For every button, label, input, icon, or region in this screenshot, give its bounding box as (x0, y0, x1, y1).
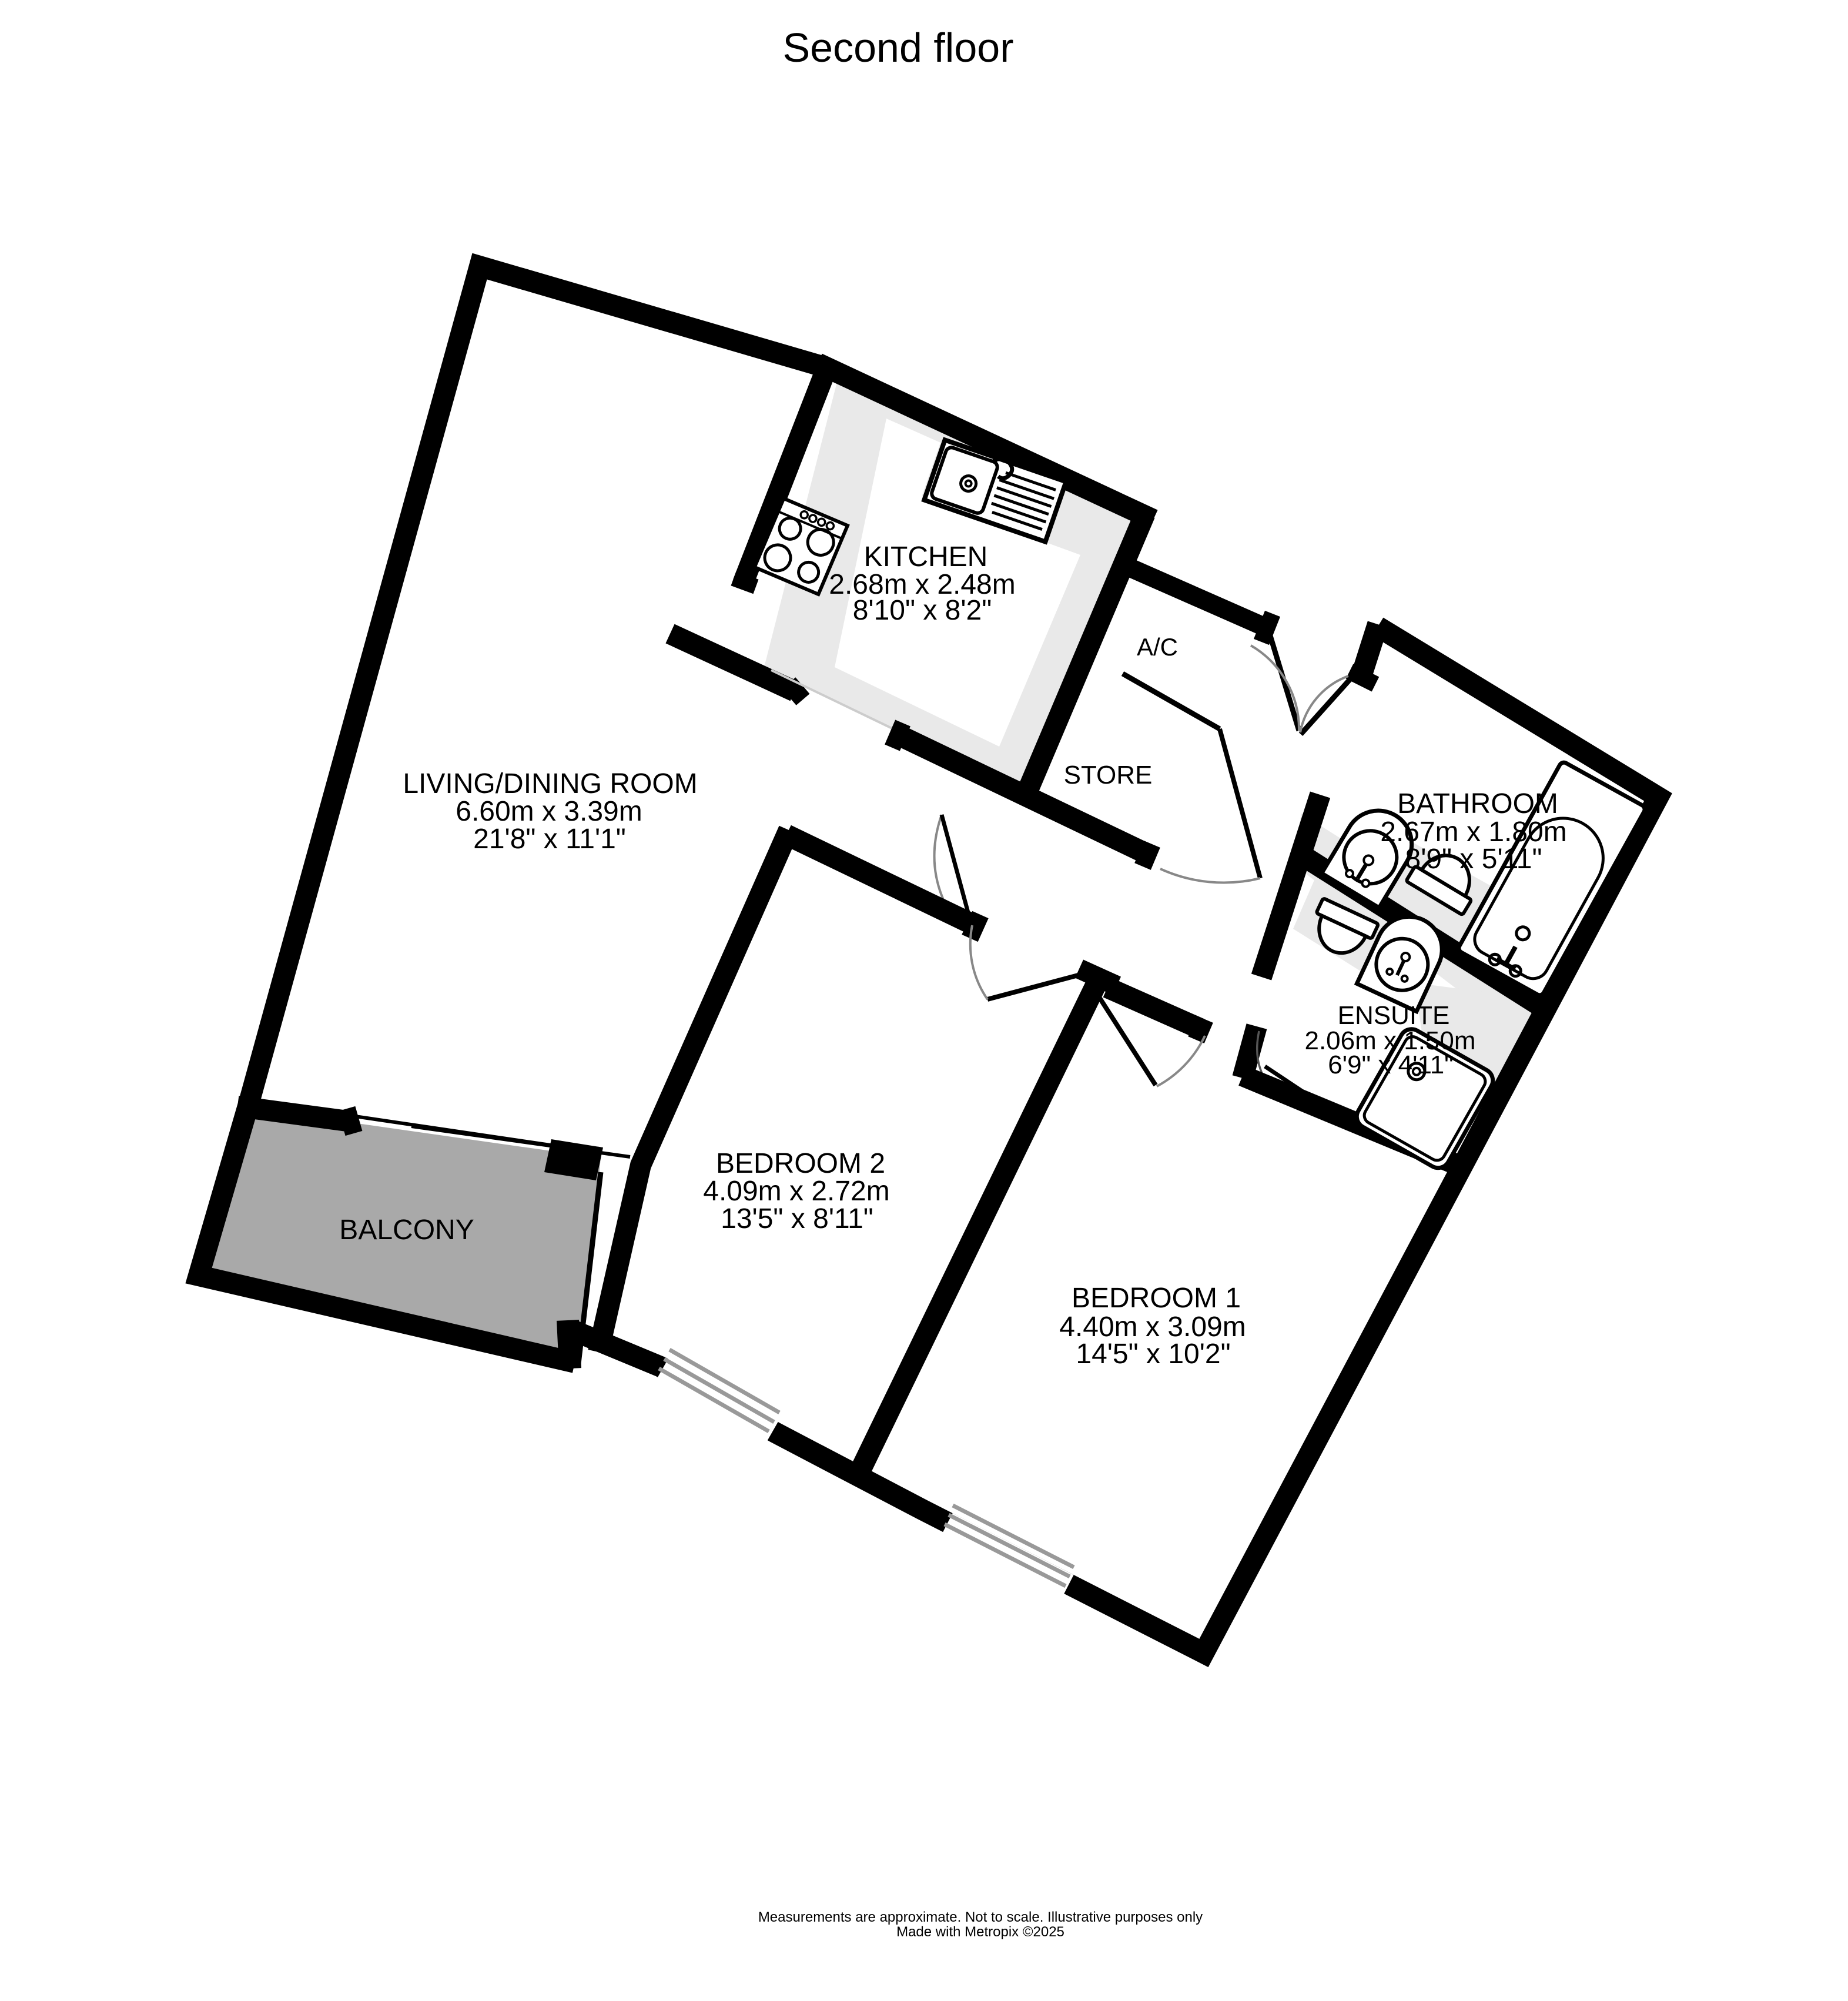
svg-text:6.60m x 3.39m: 6.60m x 3.39m (456, 796, 642, 827)
svg-text:Measurements are approximate.: Measurements are approximate. Not to sca… (758, 1909, 1203, 1925)
svg-text:KITCHEN: KITCHEN (864, 541, 988, 573)
svg-text:13'5" x 8'11": 13'5" x 8'11" (721, 1203, 873, 1234)
svg-text:Made with Metropix ©2025: Made with Metropix ©2025 (896, 1924, 1064, 1940)
svg-text:Second floor: Second floor (782, 25, 1013, 71)
svg-text:STORE: STORE (1064, 761, 1153, 789)
svg-text:ENSUITE: ENSUITE (1338, 1001, 1450, 1030)
svg-text:LIVING/DINING ROOM: LIVING/DINING ROOM (403, 768, 697, 799)
svg-text:BATHROOM: BATHROOM (1397, 788, 1558, 819)
svg-text:BALCONY: BALCONY (339, 1214, 474, 1246)
svg-text:14'5" x 10'2": 14'5" x 10'2" (1076, 1339, 1230, 1370)
svg-text:BEDROOM 2: BEDROOM 2 (716, 1148, 885, 1179)
svg-text:21'8" x 11'1": 21'8" x 11'1" (473, 824, 626, 855)
svg-text:4.09m x 2.72m: 4.09m x 2.72m (703, 1176, 889, 1207)
svg-text:6'9" x 4'11": 6'9" x 4'11" (1328, 1050, 1454, 1079)
svg-text:A/C: A/C (1137, 633, 1178, 661)
svg-text:8'10" x 8'2": 8'10" x 8'2" (853, 595, 992, 626)
svg-text:BEDROOM 1: BEDROOM 1 (1072, 1283, 1241, 1314)
svg-text:8'9" x 5'11": 8'9" x 5'11" (1405, 844, 1542, 875)
